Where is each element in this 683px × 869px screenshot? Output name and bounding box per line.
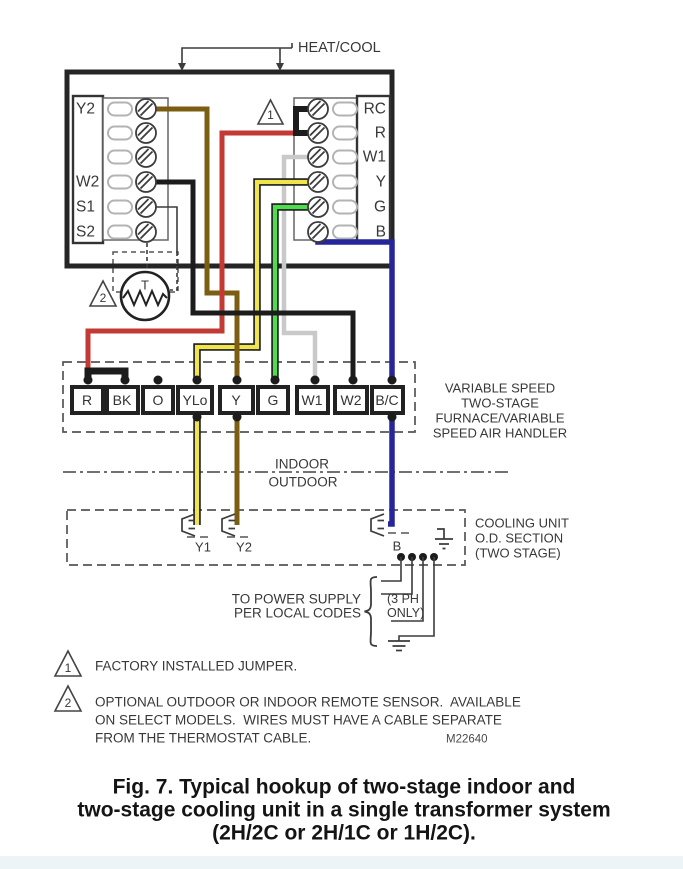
furnace-terminal-bc: B/C (375, 393, 398, 407)
terminal-label-r: R (375, 125, 386, 141)
right-screw-box (294, 98, 357, 240)
spade-connector-icon (182, 514, 195, 536)
earth-ground-icon (388, 641, 410, 651)
note-2-text-line2: ON SELECT MODELS. WIRES MUST HAVE A CABL… (95, 713, 502, 727)
chassis-ground-icon (435, 529, 453, 549)
furnace-desc-line2: TWO-STAGE (461, 397, 539, 410)
connector-label-y1: Y1 (195, 541, 211, 554)
outdoor-label: OUTDOOR (269, 475, 338, 489)
furnace-terminal-g: G (268, 393, 279, 407)
note-2-marker: 2 (100, 292, 107, 304)
terminal-label-s2: S2 (76, 224, 95, 240)
furnace-desc-line1: VARIABLE SPEED (445, 382, 555, 395)
terminal-label-y: Y (376, 174, 386, 190)
document-number: M22640 (446, 734, 488, 746)
heat-cool-label: HEAT/COOL (298, 41, 381, 56)
connector-label-y2: Y2 (236, 541, 252, 554)
sensor-t-label: T (141, 279, 149, 292)
wire-jumper-r-bk (88, 371, 125, 382)
note-1-legend-number: 1 (65, 662, 72, 674)
terminal-label-y2: Y2 (76, 101, 95, 117)
terminal-label-g: G (374, 199, 386, 215)
note-2-legend-number: 2 (65, 697, 72, 709)
power-supply-brace (365, 577, 378, 646)
furnace-terminal-o: O (153, 393, 164, 407)
connector-label-b: B (393, 540, 402, 553)
cooling-desc-line3: (TWO STAGE) (475, 547, 561, 560)
indoor-label: INDOOR (275, 457, 329, 471)
power-supply-line1: TO POWER SUPPLY (232, 592, 361, 606)
furnace-desc-line4: SPEED AIR HANDLER (433, 427, 567, 440)
furnace-terminal-w2: W2 (341, 393, 362, 407)
note-2-text-line1: OPTIONAL OUTDOOR OR INDOOR REMOTE SENSOR… (95, 695, 521, 709)
furnace-terminal-bk: BK (113, 393, 132, 407)
left-label-box (73, 96, 103, 243)
furnace-terminal-r: R (82, 393, 92, 407)
figure-caption-line2: two-stage cooling unit in a single trans… (77, 800, 610, 821)
left-screw-box (103, 98, 168, 240)
spade-connector-icon (371, 514, 384, 536)
terminal-label-w2: W2 (76, 174, 99, 190)
heat-cool-bracket (182, 43, 292, 64)
furnace-terminal-w1: W1 (302, 393, 323, 407)
terminal-label-s1: S1 (76, 199, 95, 215)
terminal-label-rc: RC (364, 101, 386, 117)
figure-caption-line1: Fig. 7. Typical hookup of two-stage indo… (113, 777, 576, 798)
page-edge-strip (0, 856, 683, 869)
wiring-diagram: HEAT/COOL Y2 W2 S1 S2 RC R W1 Y G B 1 2 … (0, 0, 683, 869)
spade-connector-icon (222, 514, 235, 536)
furnace-terminal-ylo: YLo (183, 393, 208, 407)
furnace-terminal-y: Y (231, 393, 240, 407)
cooling-unit-dashed-box (67, 510, 465, 565)
furnace-desc-line3: FURNACE/VARIABLE (435, 412, 564, 425)
figure-caption-line3: (2H/2C or 2H/1C or 1H/2C). (212, 823, 476, 844)
note-2-text-line3: FROM THE THERMOSTAT CABLE. (95, 731, 311, 745)
note-1-text: FACTORY INSTALLED JUMPER. (95, 659, 297, 673)
power-supply-line2: PER LOCAL CODES (234, 606, 361, 620)
terminal-label-w1: W1 (363, 149, 386, 165)
phase-note-line1: (3 PH (387, 593, 419, 606)
cooling-desc-line1: COOLING UNIT (475, 517, 569, 530)
phase-note-line2: ONLY) (387, 607, 424, 620)
note-1-marker: 1 (267, 109, 274, 121)
cooling-desc-line2: O.D. SECTION (475, 532, 563, 545)
right-label-box (357, 96, 390, 243)
terminal-label-b: B (376, 224, 386, 240)
